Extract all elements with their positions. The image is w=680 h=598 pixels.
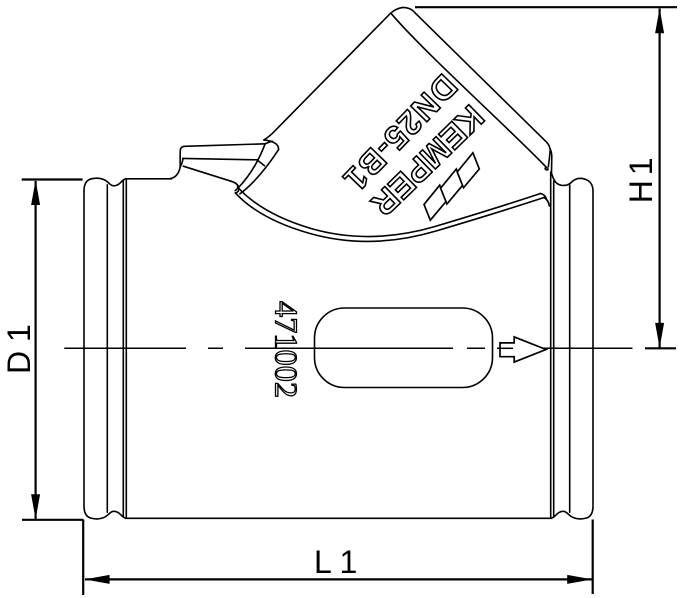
svg-text:L 1: L 1 [314, 544, 357, 580]
svg-text:471002: 471002 [269, 301, 305, 398]
svg-text:D 1: D 1 [1, 324, 37, 374]
svg-text:H 1: H 1 [623, 158, 659, 203]
